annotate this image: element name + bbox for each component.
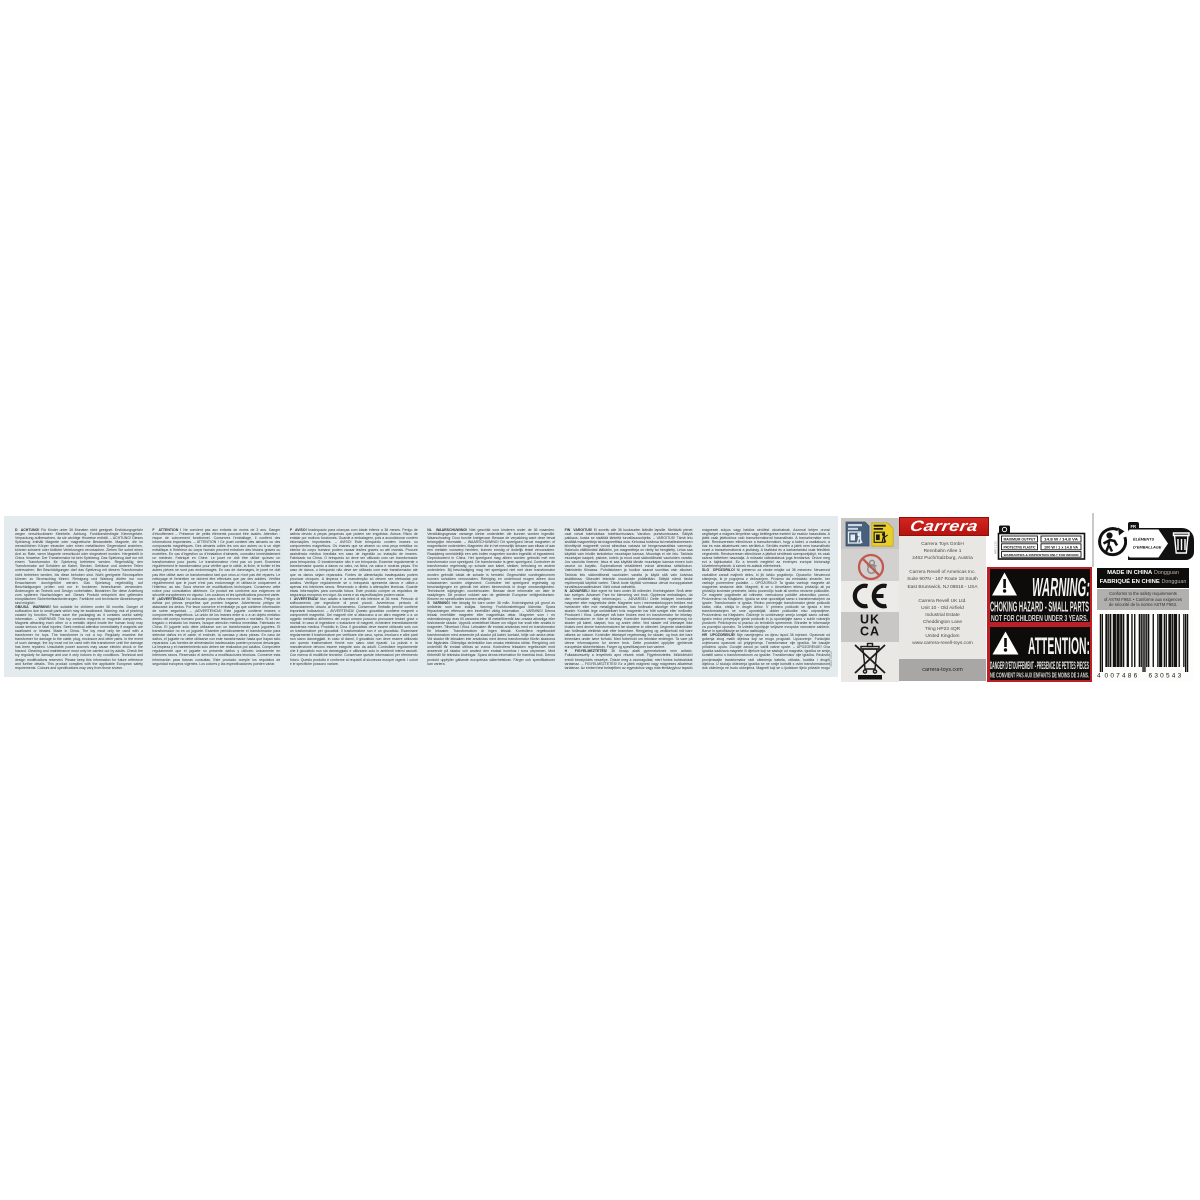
svg-text:007486: 007486 <box>1105 673 1140 680</box>
svg-text:PROTECTIVE PLASTIC: PROTECTIVE PLASTIC <box>1004 545 1037 549</box>
svg-text:WARRANTIES & DISPOSITION ONLY: WARRANTIES & DISPOSITION ONLY FOR INDOOR <box>1004 553 1080 557</box>
svg-text:D'EMBALLAGE: D'EMBALLAGE <box>1133 545 1162 550</box>
svg-text:ATTENTION:: ATTENTION: <box>1028 633 1090 660</box>
svg-text:WARNING:: WARNING: <box>1032 572 1090 602</box>
svg-text:NRTL 123: NRTL 123 <box>993 541 997 554</box>
svg-text:NOT FOR CHILDREN UNDER 3 YEARS: NOT FOR CHILDREN UNDER 3 YEARS. <box>991 613 1088 623</box>
svg-text:MAXIMUM OUTPUT: MAXIMUM OUTPUT <box>1004 538 1036 542</box>
svg-text:4: 4 <box>1097 673 1101 680</box>
svg-text:14.8 W / 14.8 VA: 14.8 W / 14.8 VA <box>1044 538 1079 542</box>
svg-text:CA: CA <box>860 625 880 639</box>
svg-text:ÉLÉMENTS: ÉLÉMENTS <box>1133 537 1155 542</box>
svg-text:630543: 630543 <box>1149 673 1184 680</box>
svg-text:100 W / 1 x 14.8 VA: 100 W / 1 x 14.8 VA <box>1044 545 1079 549</box>
svg-text:NE CONVIENT PAS AUX ENFANTS DE: NE CONVIENT PAS AUX ENFANTS DE MOINS DE … <box>990 670 1089 679</box>
